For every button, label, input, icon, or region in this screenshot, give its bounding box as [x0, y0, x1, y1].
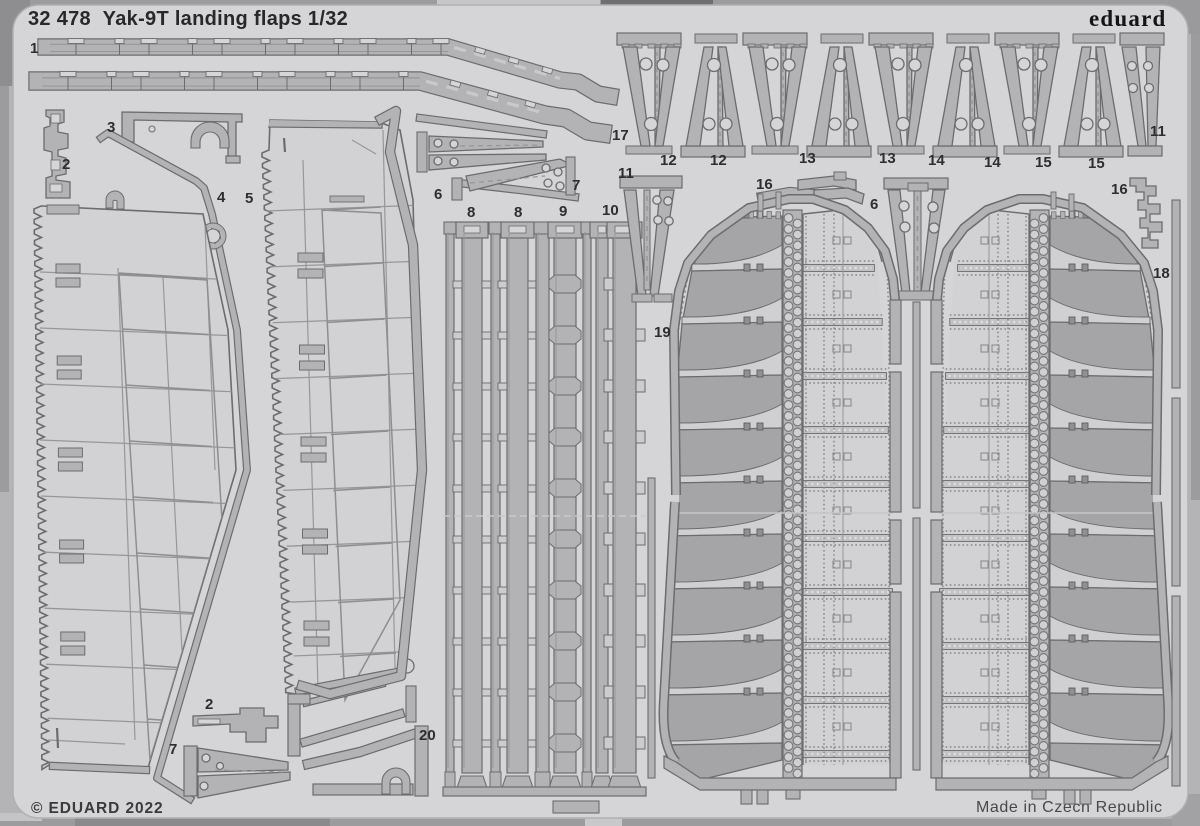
svg-text:11: 11: [1150, 123, 1166, 140]
svg-text:12: 12: [710, 152, 727, 169]
svg-text:9: 9: [559, 203, 567, 220]
svg-text:2: 2: [205, 696, 213, 713]
svg-text:32 478 Yak-9T landing flaps 1: 32 478 Yak-9T landing flaps 1/32: [28, 8, 348, 30]
svg-text:8: 8: [467, 204, 475, 221]
svg-text:17: 17: [612, 127, 629, 144]
svg-text:2: 2: [62, 156, 70, 173]
svg-text:18: 18: [1153, 265, 1170, 282]
svg-text:5: 5: [245, 190, 253, 207]
svg-text:14: 14: [928, 152, 945, 169]
svg-text:16: 16: [756, 176, 773, 193]
svg-text:15: 15: [1035, 154, 1052, 171]
svg-text:14: 14: [984, 154, 1001, 171]
svg-text:6: 6: [870, 196, 878, 213]
svg-text:1: 1: [30, 40, 38, 57]
svg-text:7: 7: [572, 177, 580, 194]
svg-text:20: 20: [419, 727, 436, 744]
svg-text:10: 10: [602, 202, 619, 219]
svg-text:4: 4: [217, 189, 226, 206]
svg-text:6: 6: [434, 186, 442, 203]
svg-text:12: 12: [660, 152, 677, 169]
svg-text:© EDUARD 2022: © EDUARD 2022: [31, 800, 164, 817]
svg-text:19: 19: [654, 324, 671, 341]
svg-text:7: 7: [169, 741, 177, 758]
svg-text:11: 11: [618, 165, 634, 182]
svg-text:16: 16: [1111, 181, 1128, 198]
svg-text:13: 13: [879, 150, 896, 167]
svg-text:3: 3: [107, 119, 115, 136]
svg-text:15: 15: [1088, 155, 1105, 172]
svg-text:13: 13: [799, 150, 816, 167]
svg-text:8: 8: [514, 204, 522, 221]
svg-text:eduard: eduard: [1089, 6, 1167, 31]
